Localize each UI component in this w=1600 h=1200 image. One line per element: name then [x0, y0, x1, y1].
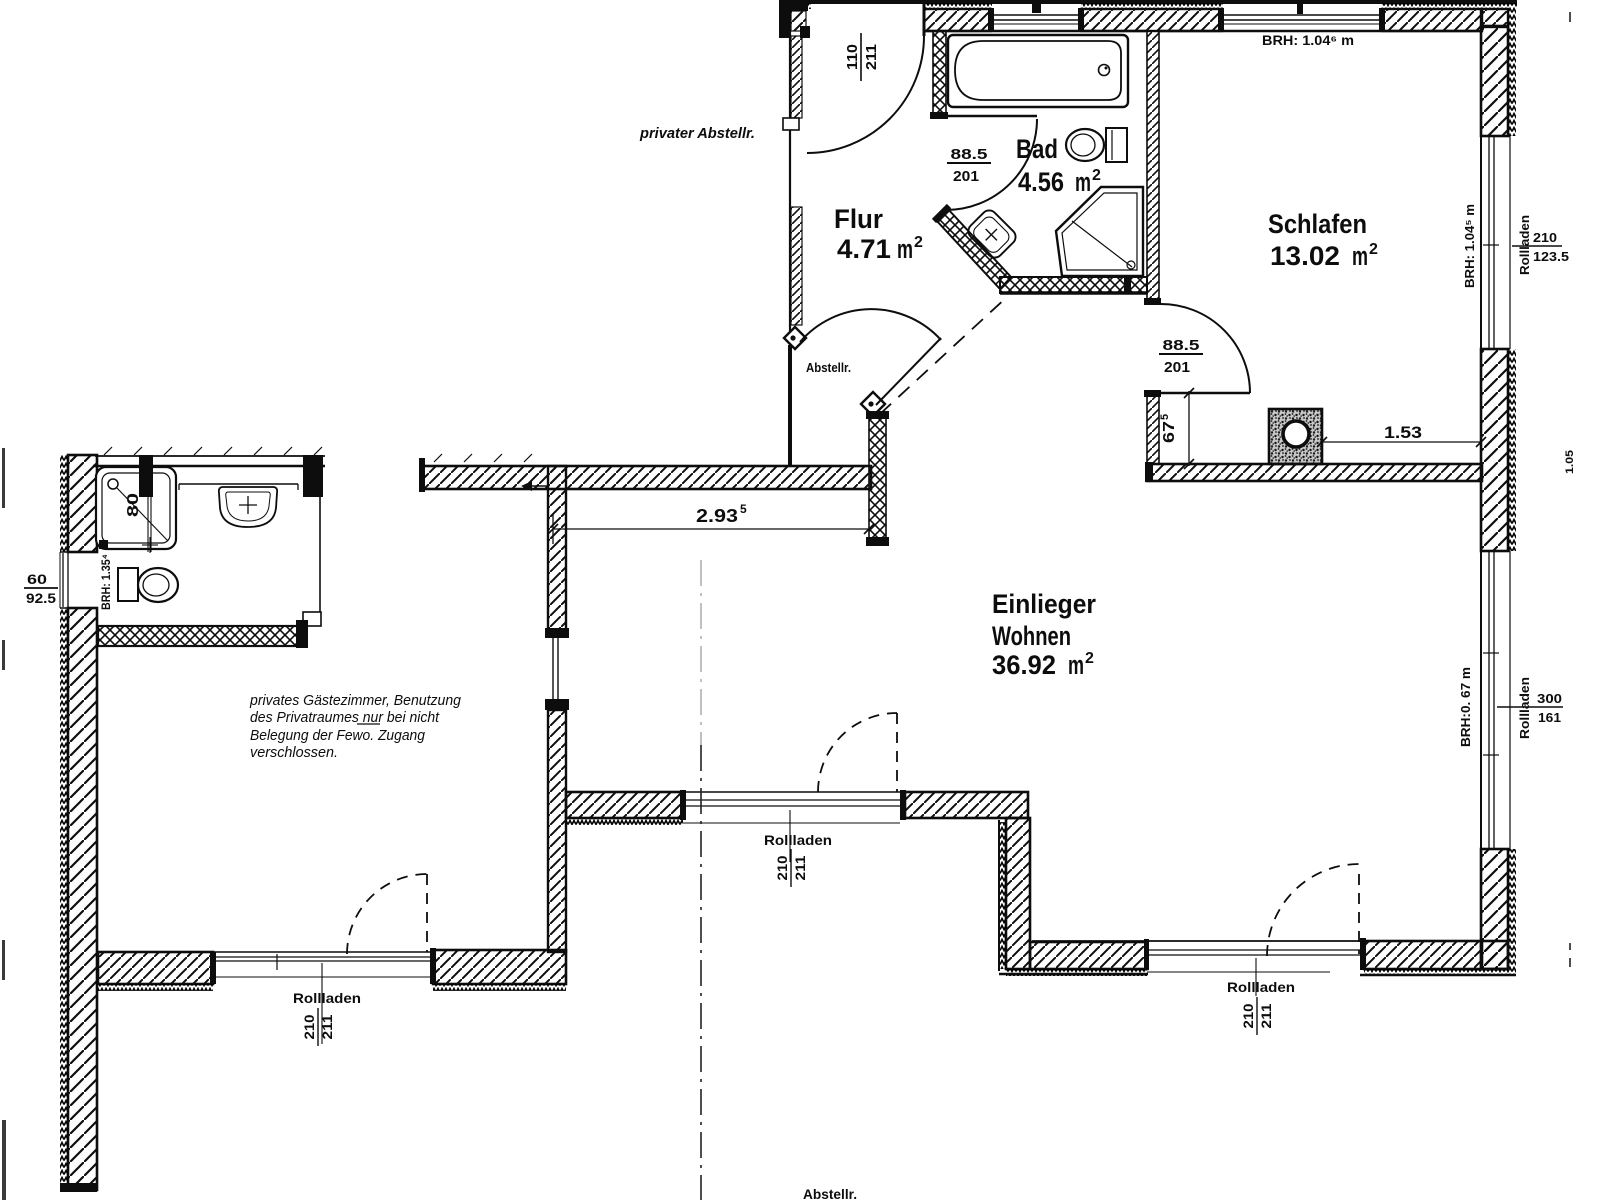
- svg-text:2: 2: [1369, 241, 1378, 258]
- svg-text:Rollladen: Rollladen: [1518, 677, 1532, 739]
- svg-text:201: 201: [1164, 359, 1190, 376]
- svg-text:m: m: [1068, 650, 1084, 680]
- svg-text:BRH:0. 67 m: BRH:0. 67 m: [1458, 667, 1473, 747]
- svg-text:211: 211: [1258, 1003, 1274, 1028]
- svg-text:161: 161: [1538, 710, 1561, 725]
- svg-text:m: m: [897, 234, 913, 264]
- svg-text:privates Gästezimmer, Benutzun: privates Gästezimmer, Benutzung: [249, 693, 461, 709]
- svg-text:Rollladen: Rollladen: [1227, 979, 1295, 995]
- svg-text:201: 201: [953, 168, 979, 185]
- svg-text:92.5: 92.5: [26, 590, 56, 606]
- svg-text:Einlieger: Einlieger: [992, 589, 1096, 619]
- svg-text:67: 67: [1161, 421, 1178, 443]
- svg-text:Belegung der Fewo. Zugang: Belegung der Fewo. Zugang: [250, 728, 425, 744]
- svg-text:5: 5: [740, 502, 747, 516]
- svg-text:210: 210: [1533, 230, 1557, 245]
- svg-text:Abstellr.: Abstellr.: [803, 1186, 857, 1200]
- svg-text:BRH: 1.04⁵ m: BRH: 1.04⁵ m: [1462, 204, 1477, 288]
- svg-text:2: 2: [1092, 167, 1101, 184]
- svg-text:210: 210: [1240, 1003, 1256, 1028]
- svg-text:211: 211: [792, 855, 808, 880]
- svg-text:Schlafen: Schlafen: [1268, 209, 1367, 239]
- svg-text:2: 2: [1085, 650, 1094, 667]
- svg-text:4.56: 4.56: [1018, 167, 1064, 197]
- svg-text:BRH: 1.35⁴: BRH: 1.35⁴: [99, 554, 113, 610]
- svg-text:110: 110: [844, 44, 861, 70]
- svg-text:des Privatraumes nur bei nicht: des Privatraumes nur bei nicht: [250, 710, 440, 726]
- svg-text:210: 210: [774, 855, 790, 880]
- svg-text:Flur: Flur: [834, 204, 883, 234]
- svg-text:4.71: 4.71: [837, 234, 891, 264]
- svg-text:verschlossen.: verschlossen.: [250, 745, 338, 761]
- svg-text:2: 2: [914, 234, 923, 251]
- svg-text:privater Abstellr.: privater Abstellr.: [639, 126, 755, 142]
- svg-text:88.5: 88.5: [951, 146, 988, 163]
- svg-text:Bad: Bad: [1016, 134, 1058, 164]
- svg-text:m: m: [1352, 241, 1368, 271]
- svg-text:211: 211: [863, 44, 880, 70]
- svg-text:1.05: 1.05: [1564, 450, 1576, 474]
- svg-text:Abstellr.: Abstellr.: [806, 360, 851, 375]
- svg-text:Rollladen: Rollladen: [764, 832, 832, 848]
- svg-text:13.02: 13.02: [1270, 241, 1340, 271]
- svg-text:123.5: 123.5: [1533, 249, 1569, 264]
- svg-text:2.93: 2.93: [696, 506, 738, 526]
- svg-text:Rollladen: Rollladen: [1518, 215, 1532, 275]
- svg-text:88.5: 88.5: [1163, 337, 1200, 354]
- svg-text:211: 211: [319, 1014, 335, 1039]
- svg-text:36.92: 36.92: [992, 650, 1056, 680]
- svg-text:m: m: [1075, 167, 1091, 197]
- svg-text:1.53: 1.53: [1384, 423, 1422, 442]
- svg-text:210: 210: [301, 1014, 317, 1039]
- svg-text:Wohnen: Wohnen: [992, 621, 1071, 651]
- svg-text:Rollladen: Rollladen: [293, 990, 361, 1006]
- svg-text:60: 60: [27, 571, 47, 587]
- svg-text:300: 300: [1537, 691, 1562, 706]
- svg-text:5: 5: [1159, 414, 1171, 420]
- svg-text:BRH: 1.04⁶ m: BRH: 1.04⁶ m: [1262, 32, 1354, 48]
